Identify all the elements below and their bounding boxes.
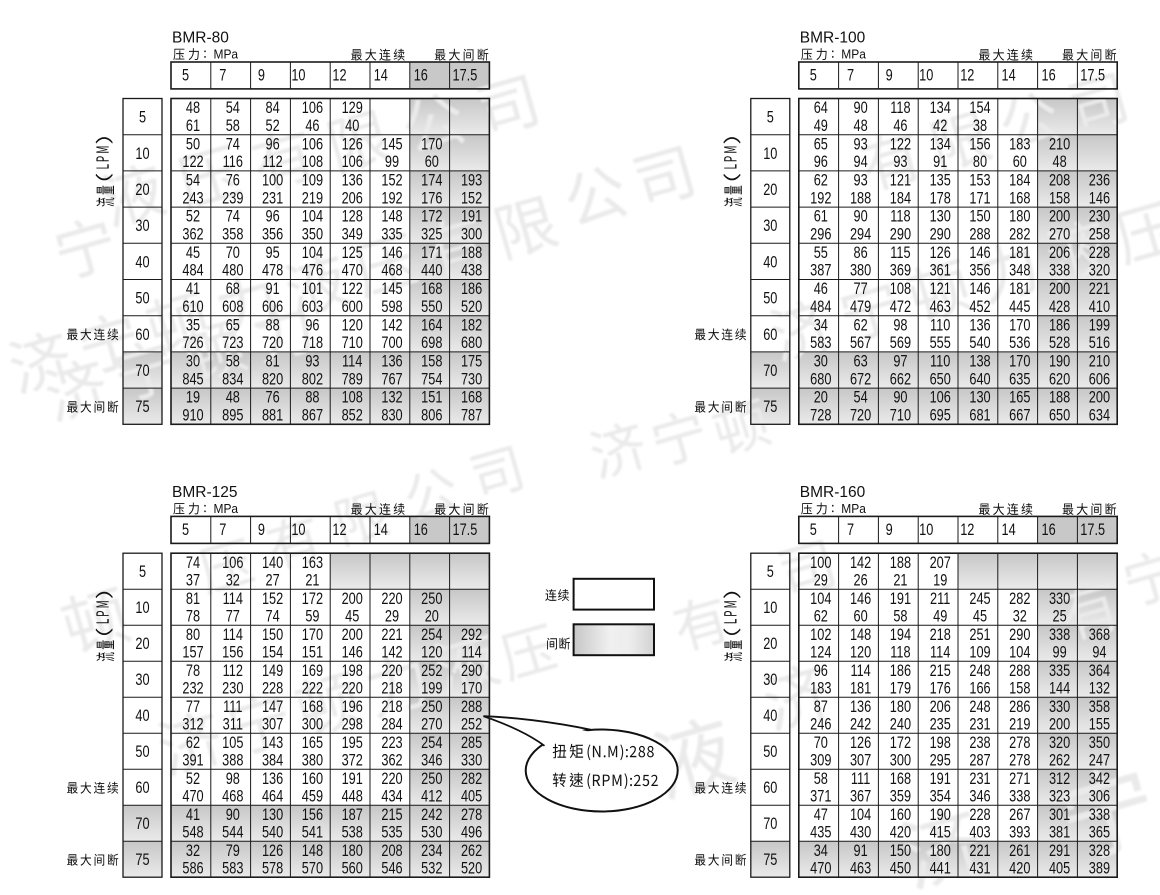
svg-text:145: 145 (381, 135, 402, 154)
svg-text:52: 52 (186, 207, 200, 226)
svg-text:540: 540 (262, 823, 283, 842)
svg-text:76: 76 (226, 171, 240, 190)
svg-text:100: 100 (810, 553, 831, 572)
svg-text:160: 160 (302, 769, 323, 788)
svg-text:192: 192 (381, 189, 402, 208)
svg-text:188: 188 (850, 189, 871, 208)
svg-text:87: 87 (814, 697, 828, 716)
svg-text:5: 5 (182, 66, 189, 85)
svg-text:5: 5 (767, 562, 774, 581)
svg-text:240: 240 (890, 715, 911, 734)
svg-text:5: 5 (139, 562, 146, 581)
svg-text:45: 45 (973, 607, 987, 626)
svg-text:7: 7 (219, 520, 226, 539)
svg-text:295: 295 (930, 751, 951, 770)
svg-text:789: 789 (342, 370, 363, 389)
svg-text:530: 530 (421, 823, 442, 842)
svg-text:20: 20 (763, 180, 777, 199)
svg-text:105: 105 (222, 733, 243, 752)
svg-text:480: 480 (222, 261, 243, 280)
svg-text:150: 150 (890, 841, 911, 860)
svg-text:380: 380 (850, 261, 871, 280)
svg-text:60: 60 (135, 325, 149, 344)
svg-text:541: 541 (302, 823, 323, 842)
svg-text:484: 484 (810, 297, 831, 316)
svg-text:90: 90 (854, 207, 868, 226)
svg-text:190: 190 (930, 805, 951, 824)
svg-text:96: 96 (266, 135, 280, 154)
svg-text:238: 238 (969, 733, 990, 752)
svg-text:40: 40 (135, 706, 149, 725)
svg-text:165: 165 (1009, 388, 1030, 407)
svg-text:110: 110 (930, 352, 950, 371)
svg-text:680: 680 (810, 370, 831, 389)
svg-text:389: 389 (1089, 859, 1110, 878)
svg-text:262: 262 (461, 841, 482, 860)
svg-text:371: 371 (810, 787, 831, 806)
svg-text:5: 5 (767, 108, 774, 127)
svg-text:606: 606 (1089, 370, 1110, 389)
svg-text:180: 180 (1009, 207, 1030, 226)
svg-text:106: 106 (222, 553, 243, 572)
svg-text:208: 208 (1049, 171, 1070, 190)
svg-text:910: 910 (182, 406, 203, 425)
svg-text:307: 307 (262, 715, 283, 734)
svg-text:10: 10 (291, 520, 305, 539)
svg-text:94: 94 (854, 152, 868, 171)
svg-text:166: 166 (969, 679, 990, 698)
svg-text:50: 50 (763, 742, 777, 761)
svg-text:834: 834 (222, 370, 243, 389)
svg-text:200: 200 (1049, 279, 1070, 298)
svg-text:47: 47 (814, 805, 828, 824)
svg-text:61: 61 (814, 207, 828, 226)
svg-text:122: 122 (342, 279, 363, 298)
svg-text:325: 325 (421, 225, 442, 244)
svg-text:77: 77 (226, 607, 240, 626)
svg-text:14: 14 (374, 520, 388, 539)
svg-text:420: 420 (1009, 859, 1030, 878)
svg-text:63: 63 (854, 352, 868, 371)
svg-text:60: 60 (763, 325, 777, 344)
svg-text:146: 146 (342, 643, 363, 662)
svg-text:172: 172 (421, 207, 442, 226)
svg-text:112: 112 (262, 152, 282, 171)
svg-text:218: 218 (381, 697, 402, 716)
svg-text:219: 219 (302, 189, 323, 208)
svg-text:149: 149 (262, 661, 283, 680)
svg-text:368: 368 (1089, 625, 1110, 644)
svg-text:40: 40 (763, 706, 777, 725)
svg-text:148: 148 (302, 841, 323, 860)
svg-text:180: 180 (890, 697, 911, 716)
svg-text:5: 5 (139, 108, 146, 127)
svg-text:528: 528 (1049, 333, 1070, 352)
svg-text:17.5: 17.5 (1080, 520, 1105, 539)
svg-text:21: 21 (305, 571, 319, 590)
svg-text:330: 330 (461, 751, 482, 770)
svg-text:361: 361 (930, 261, 951, 280)
svg-text:634: 634 (1089, 406, 1110, 425)
svg-text:235: 235 (930, 715, 951, 734)
svg-text:42: 42 (933, 116, 947, 135)
svg-text:148: 148 (381, 207, 402, 226)
svg-text:10: 10 (763, 144, 777, 163)
svg-text:459: 459 (302, 787, 323, 806)
svg-text:220: 220 (342, 679, 363, 698)
svg-text:134: 134 (930, 98, 951, 117)
svg-text:110: 110 (930, 316, 950, 335)
svg-text:10: 10 (135, 144, 149, 163)
svg-text:186: 186 (1049, 316, 1070, 335)
svg-text:403: 403 (969, 823, 990, 842)
svg-text:180: 180 (342, 841, 363, 860)
svg-text:820: 820 (262, 370, 283, 389)
svg-text:220: 220 (381, 769, 402, 788)
svg-text:52: 52 (186, 769, 200, 788)
svg-text:108: 108 (890, 279, 911, 298)
svg-text:323: 323 (1049, 787, 1070, 806)
svg-text:98: 98 (893, 316, 907, 335)
svg-text:320: 320 (1089, 261, 1110, 280)
svg-text:14: 14 (1002, 520, 1016, 539)
svg-text:48: 48 (1053, 152, 1067, 171)
svg-text:290: 290 (930, 225, 951, 244)
svg-text:109: 109 (969, 643, 990, 662)
svg-text:464: 464 (262, 787, 283, 806)
svg-text:10: 10 (919, 66, 933, 85)
svg-text:681: 681 (969, 406, 990, 425)
svg-text:358: 358 (1089, 697, 1110, 716)
svg-text:463: 463 (930, 297, 951, 316)
svg-text:108: 108 (302, 152, 323, 171)
svg-text:312: 312 (1049, 769, 1070, 788)
svg-text:608: 608 (222, 297, 243, 316)
svg-text:532: 532 (421, 859, 442, 878)
svg-text:420: 420 (890, 823, 911, 842)
svg-text:330: 330 (1049, 697, 1070, 716)
svg-text:223: 223 (381, 733, 402, 752)
svg-text:288: 288 (969, 225, 990, 244)
svg-text:75: 75 (763, 397, 777, 416)
svg-text:362: 362 (182, 225, 203, 244)
svg-text:282: 282 (1009, 225, 1030, 244)
svg-text:250: 250 (421, 697, 442, 716)
svg-text:70: 70 (226, 243, 240, 262)
svg-text:26: 26 (854, 571, 868, 590)
svg-text:147: 147 (262, 697, 283, 716)
svg-text:181: 181 (850, 679, 871, 698)
svg-text:248: 248 (969, 697, 990, 716)
svg-text:718: 718 (302, 333, 323, 352)
svg-text:535: 535 (381, 823, 402, 842)
svg-text:710: 710 (890, 406, 911, 425)
svg-text:516: 516 (1089, 333, 1110, 352)
svg-text:650: 650 (930, 370, 951, 389)
svg-text:146: 146 (1089, 189, 1110, 208)
svg-text:215: 215 (381, 805, 402, 824)
svg-text:895: 895 (222, 406, 243, 425)
svg-text:567: 567 (850, 333, 871, 352)
svg-text:125: 125 (342, 243, 363, 262)
svg-text:124: 124 (810, 643, 831, 662)
svg-text:104: 104 (1009, 643, 1030, 662)
svg-text:479: 479 (850, 297, 871, 316)
svg-text:156: 156 (969, 135, 990, 154)
svg-text:338: 338 (1049, 625, 1070, 644)
svg-text:58: 58 (814, 769, 828, 788)
svg-text:130: 130 (262, 805, 283, 824)
svg-text:544: 544 (222, 823, 243, 842)
svg-text:338: 338 (1009, 787, 1030, 806)
svg-text:208: 208 (381, 841, 402, 860)
svg-text:198: 198 (930, 733, 951, 752)
svg-text:211: 211 (930, 589, 950, 608)
svg-text:300: 300 (890, 751, 911, 770)
svg-text:7: 7 (219, 66, 226, 85)
svg-text:802: 802 (302, 370, 323, 389)
svg-text:194: 194 (890, 625, 911, 644)
svg-text:170: 170 (1009, 352, 1030, 371)
svg-text:136: 136 (969, 316, 990, 335)
svg-text:434: 434 (381, 787, 402, 806)
svg-text:30: 30 (135, 216, 149, 235)
svg-text:112: 112 (223, 661, 243, 680)
svg-text:620: 620 (1049, 370, 1070, 389)
svg-text:354: 354 (930, 787, 951, 806)
svg-text:120: 120 (342, 316, 363, 335)
svg-text:100: 100 (262, 171, 283, 190)
svg-text:68: 68 (226, 279, 240, 298)
svg-text:78: 78 (186, 607, 200, 626)
svg-text:170: 170 (421, 135, 442, 154)
svg-text:40: 40 (763, 253, 777, 272)
svg-text:12: 12 (960, 66, 974, 85)
svg-text:130: 130 (930, 207, 951, 226)
svg-text:5: 5 (182, 520, 189, 539)
svg-text:126: 126 (930, 243, 951, 262)
svg-text:520: 520 (461, 297, 482, 316)
svg-text:BMR-80: BMR-80 (172, 29, 229, 46)
svg-text:109: 109 (302, 171, 323, 190)
svg-text:34: 34 (814, 841, 828, 860)
svg-text:200: 200 (1089, 388, 1110, 407)
svg-text:231: 231 (262, 189, 283, 208)
svg-text:95: 95 (266, 243, 280, 262)
svg-text:50: 50 (186, 135, 200, 154)
svg-text:14: 14 (374, 66, 388, 85)
svg-text:158: 158 (1009, 679, 1030, 698)
svg-text:122: 122 (182, 152, 203, 171)
svg-text:77: 77 (854, 279, 868, 298)
svg-text:282: 282 (461, 769, 482, 788)
svg-text:210: 210 (1049, 135, 1070, 154)
svg-text:79: 79 (226, 841, 240, 860)
svg-text:335: 335 (1049, 661, 1070, 680)
svg-text:80: 80 (186, 625, 200, 644)
svg-text:440: 440 (421, 261, 442, 280)
svg-text:184: 184 (1009, 171, 1030, 190)
svg-text:555: 555 (930, 333, 951, 352)
svg-text:114: 114 (342, 352, 362, 371)
svg-text:5: 5 (810, 66, 817, 85)
svg-text:41: 41 (186, 805, 200, 824)
svg-text:285: 285 (461, 733, 482, 752)
svg-text:29: 29 (814, 571, 828, 590)
svg-text:160: 160 (890, 805, 911, 824)
svg-text:186: 186 (890, 661, 911, 680)
svg-text:252: 252 (461, 715, 482, 734)
svg-text:144: 144 (1049, 679, 1070, 698)
svg-text:153: 153 (969, 171, 990, 190)
svg-text:74: 74 (266, 607, 280, 626)
svg-text:91: 91 (266, 279, 280, 298)
svg-text:200: 200 (1049, 207, 1070, 226)
svg-text:183: 183 (1009, 135, 1030, 154)
svg-text:146: 146 (969, 243, 990, 262)
svg-text:80: 80 (973, 152, 987, 171)
svg-text:183: 183 (810, 679, 831, 698)
svg-text:126: 126 (850, 733, 871, 752)
svg-text:230: 230 (222, 679, 243, 698)
svg-text:270: 270 (1049, 225, 1070, 244)
svg-text:290: 290 (1009, 625, 1030, 644)
svg-text:546: 546 (381, 859, 402, 878)
svg-text:700: 700 (381, 333, 402, 352)
svg-text:301: 301 (1049, 805, 1070, 824)
svg-text:104: 104 (302, 243, 323, 262)
svg-text:84: 84 (266, 98, 280, 117)
svg-text:106: 106 (302, 98, 323, 117)
svg-text:267: 267 (1009, 805, 1030, 824)
svg-text:288: 288 (461, 697, 482, 716)
svg-text:BMR-100: BMR-100 (800, 29, 866, 46)
svg-text:195: 195 (342, 733, 363, 752)
svg-text:168: 168 (421, 279, 442, 298)
svg-text:20: 20 (814, 388, 828, 407)
svg-text:60: 60 (763, 778, 777, 797)
svg-text:136: 136 (850, 697, 871, 716)
svg-text:380: 380 (302, 751, 323, 770)
svg-text:MPa: MPa (841, 47, 866, 62)
svg-text:151: 151 (302, 643, 323, 662)
svg-text:136: 136 (342, 171, 363, 190)
svg-text:58: 58 (226, 352, 240, 371)
svg-text:206: 206 (342, 189, 363, 208)
svg-text:132: 132 (381, 388, 402, 407)
svg-text:41: 41 (186, 279, 200, 298)
svg-text:30: 30 (763, 216, 777, 235)
svg-text:64: 64 (814, 98, 828, 117)
svg-text:9: 9 (886, 520, 893, 539)
svg-text:228: 228 (1089, 243, 1110, 262)
svg-text:245: 245 (969, 589, 990, 608)
svg-text:358: 358 (222, 225, 243, 244)
svg-text:BMR-125: BMR-125 (172, 484, 237, 501)
svg-text:174: 174 (421, 171, 442, 190)
svg-text:102: 102 (810, 625, 831, 644)
svg-text:49: 49 (933, 607, 947, 626)
svg-text:155: 155 (1089, 715, 1110, 734)
svg-text:MPa: MPa (841, 502, 866, 517)
svg-text:90: 90 (226, 805, 240, 824)
svg-text:45: 45 (186, 243, 200, 262)
svg-text:54: 54 (186, 171, 200, 190)
svg-text:136: 136 (262, 769, 283, 788)
svg-text:175: 175 (461, 352, 482, 371)
svg-text:270: 270 (421, 715, 442, 734)
svg-text:118: 118 (890, 643, 910, 662)
svg-text:20: 20 (135, 180, 149, 199)
svg-text:726: 726 (182, 333, 203, 352)
svg-text:239: 239 (222, 189, 243, 208)
svg-text:104: 104 (810, 589, 831, 608)
svg-text:307: 307 (850, 751, 871, 770)
svg-text:405: 405 (1049, 859, 1070, 878)
svg-text:218: 218 (930, 625, 951, 644)
svg-text:348: 348 (1009, 261, 1030, 280)
svg-text:46: 46 (814, 279, 828, 298)
svg-text:271: 271 (1009, 769, 1030, 788)
svg-text:81: 81 (186, 589, 200, 608)
svg-text:29: 29 (385, 607, 399, 626)
svg-text:126: 126 (342, 135, 363, 154)
svg-text:135: 135 (930, 171, 951, 190)
svg-text:258: 258 (1089, 225, 1110, 244)
svg-text:583: 583 (222, 859, 243, 878)
svg-text:143: 143 (262, 733, 283, 752)
svg-text:65: 65 (814, 135, 828, 154)
svg-text:452: 452 (969, 297, 990, 316)
svg-text:88: 88 (266, 316, 280, 335)
svg-text:328: 328 (1089, 841, 1110, 860)
svg-text:30: 30 (135, 670, 149, 689)
svg-text:290: 290 (890, 225, 911, 244)
svg-text:106: 106 (930, 388, 951, 407)
svg-text:142: 142 (850, 553, 871, 572)
svg-text:290: 290 (461, 661, 482, 680)
svg-text:74: 74 (226, 207, 240, 226)
svg-text:142: 142 (381, 316, 402, 335)
svg-text:586: 586 (182, 859, 203, 878)
svg-text:70: 70 (763, 361, 777, 380)
svg-text:116: 116 (223, 152, 243, 171)
svg-text:40: 40 (345, 116, 359, 135)
svg-text:146: 146 (850, 589, 871, 608)
svg-text:154: 154 (969, 98, 990, 117)
svg-text:188: 188 (461, 243, 482, 262)
svg-text:114: 114 (223, 625, 243, 644)
svg-text:852: 852 (342, 406, 363, 425)
svg-text:172: 172 (890, 733, 911, 752)
svg-text:478: 478 (262, 261, 283, 280)
svg-text:170: 170 (302, 625, 323, 644)
svg-text:38: 38 (973, 116, 987, 135)
svg-text:128: 128 (342, 207, 363, 226)
svg-text:81: 81 (266, 352, 280, 371)
svg-text:287: 287 (969, 751, 990, 770)
svg-text:578: 578 (262, 859, 283, 878)
svg-text:16: 16 (414, 520, 428, 539)
svg-text:540: 540 (969, 333, 990, 352)
svg-text:186: 186 (461, 279, 482, 298)
svg-text:104: 104 (850, 805, 871, 824)
svg-text:881: 881 (262, 406, 283, 425)
svg-text:215: 215 (930, 661, 951, 680)
svg-text:14: 14 (1002, 66, 1016, 85)
svg-text:728: 728 (810, 406, 831, 425)
svg-text:157: 157 (182, 643, 203, 662)
